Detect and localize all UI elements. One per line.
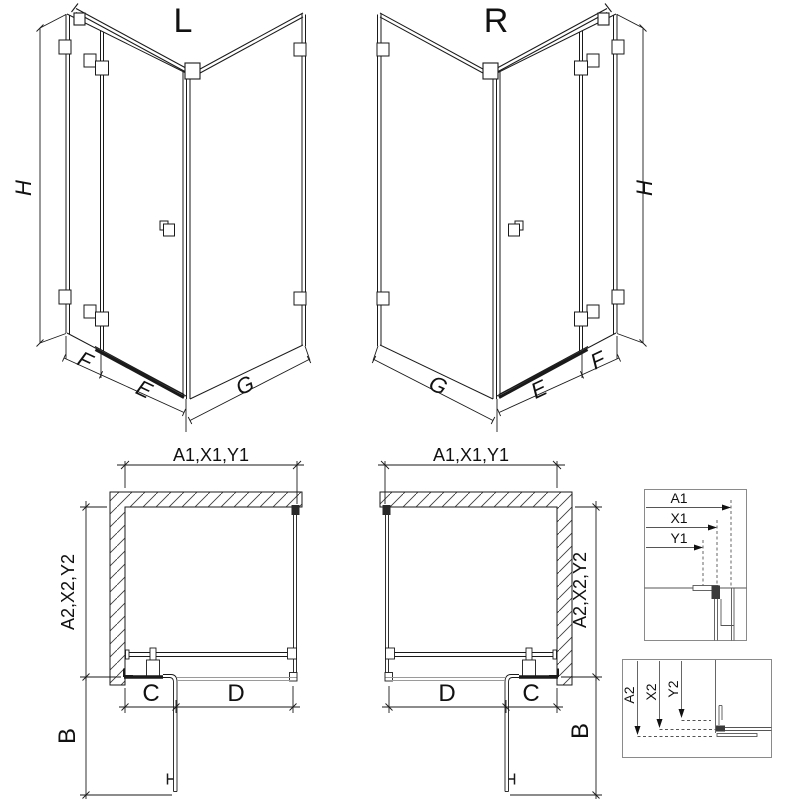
iso-right-title: R [484, 2, 509, 40]
plan-right-c-label: C [522, 680, 539, 707]
iso-left-height-label: H [11, 180, 36, 196]
detail-top-y1-label: Y1 [670, 530, 687, 546]
detail-bottom-a2-label: A2 [621, 686, 637, 703]
plan-left-width-label: A1,X1,Y1 [173, 445, 249, 465]
iso-left-f-label: F [74, 346, 98, 375]
plan-right-depth-label: A2,X2,Y2 [570, 552, 590, 628]
iso-left-e-label: E [132, 375, 156, 404]
detail-box-top [645, 490, 747, 641]
plan-right-d-label: D [438, 680, 455, 707]
plan-left-b-label: B [54, 728, 81, 744]
shower-enclosure-diagram: L R H H F E G F E G A1,X1,Y1 A1,X1,Y1 A2… [0, 0, 800, 800]
detail-top-x1-label: X1 [670, 510, 687, 526]
plan-right-width-label: A1,X1,Y1 [433, 445, 509, 465]
iso-left-title: L [174, 2, 193, 40]
detail-top-clamp [712, 586, 721, 600]
iso-right-g-label: G [425, 370, 451, 400]
iso-right-f-label: F [586, 345, 610, 374]
iso-right-e-label: E [527, 375, 551, 404]
detail-bottom-x2-label: X2 [643, 683, 659, 700]
plan-right-b-label: B [567, 723, 594, 739]
detail-bottom-clamp [716, 726, 725, 732]
plan-left-c-label: C [142, 680, 159, 707]
plan-left-depth-label: A2,X2,Y2 [58, 554, 78, 630]
iso-right-height-label: H [632, 180, 657, 196]
plan-left-d-label: D [227, 680, 244, 707]
iso-left-g-label: G [232, 370, 258, 400]
diagram-page: L R H H F E G F E G A1,X1,Y1 A1,X1,Y1 A2… [0, 0, 800, 800]
detail-box-bottom [623, 660, 772, 758]
detail-top-a1-label: A1 [670, 490, 687, 506]
detail-bottom-y2-label: Y2 [665, 680, 681, 697]
